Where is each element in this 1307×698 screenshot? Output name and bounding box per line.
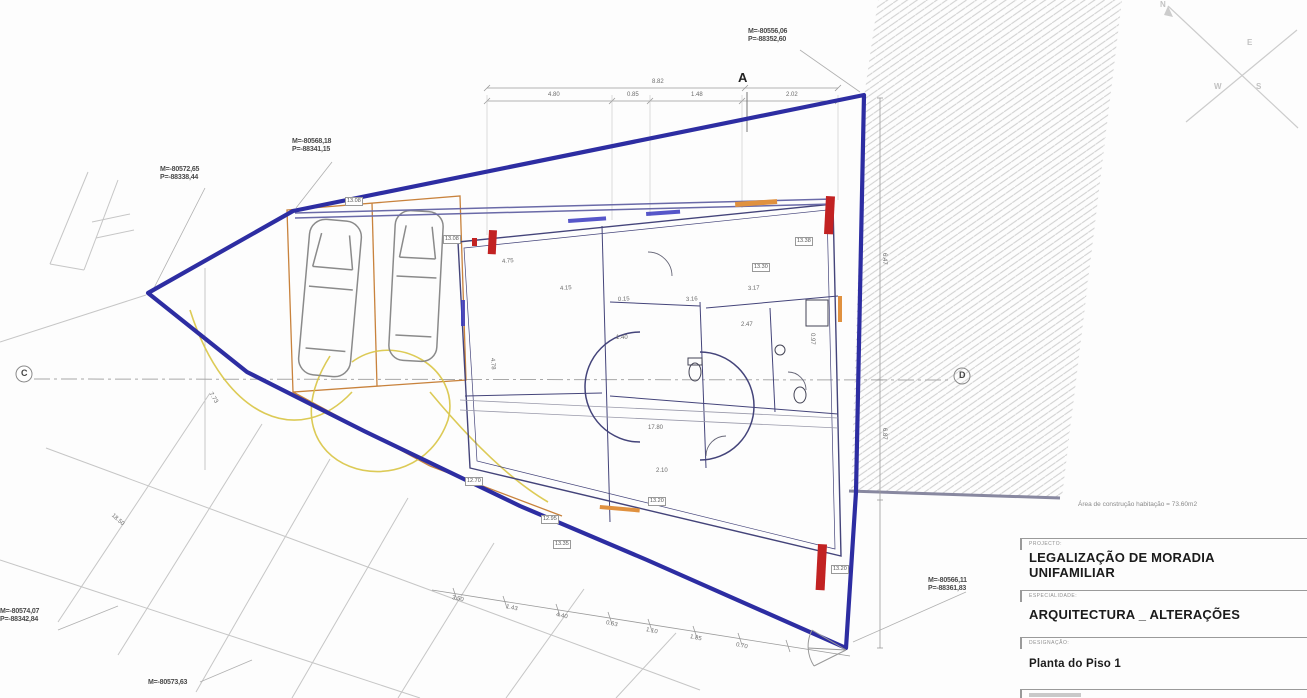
designation-title: Planta do Piso 1 xyxy=(1029,658,1121,670)
title-block-tick xyxy=(1020,638,1022,649)
site-plan-canvas: M=-80556,06P=-88352,60M=-80568,18P=-8834… xyxy=(0,0,1307,698)
section-marker-c: C xyxy=(21,368,28,378)
project-label: PROJECTO: xyxy=(1029,541,1062,547)
area-note: Área de construção habitação = 73.60m2 xyxy=(1078,501,1197,508)
title-block: PROJECTO: LEGALIZAÇÃO DE MORADIA UNIFAMI… xyxy=(1020,532,1307,698)
leader-lines xyxy=(58,50,966,682)
title-block-designation-section: DESIGNAÇÃO: Planta do Piso 1 xyxy=(1020,637,1307,690)
title-block-project-section: PROJECTO: LEGALIZAÇÃO DE MORADIA UNIFAMI… xyxy=(1020,538,1307,591)
terrain-lines xyxy=(0,172,700,698)
title-block-tick xyxy=(1020,591,1022,602)
site-boundary xyxy=(148,95,864,648)
compass-icon xyxy=(1164,6,1298,128)
compass-w-label: W xyxy=(1214,82,1222,91)
garage-outline xyxy=(287,196,562,516)
title-block-tick xyxy=(1020,539,1022,550)
section-marker-a: A xyxy=(738,70,747,85)
section-line-cd xyxy=(16,366,970,384)
project-title-line1: LEGALIZAÇÃO DE MORADIA xyxy=(1029,550,1215,565)
section-marker-d: D xyxy=(959,370,966,380)
compass-e-label: E xyxy=(1247,38,1252,47)
compass-n-label: N xyxy=(1160,0,1166,9)
illegible-label-bar xyxy=(1029,693,1081,697)
title-block-specialty-section: ESPECIALIDADE: ARQUITECTURA _ ALTERAÇÕES xyxy=(1020,590,1307,638)
specialty-title: ARQUITECTURA _ ALTERAÇÕES xyxy=(1029,607,1240,622)
title-block-tick xyxy=(1020,690,1022,698)
specialty-label: ESPECIALIDADE: xyxy=(1029,593,1077,599)
title-block-partial-section xyxy=(1020,689,1307,698)
red-section-markers xyxy=(472,196,835,590)
designation-label: DESIGNAÇÃO: xyxy=(1029,640,1069,646)
compass-s-label: S xyxy=(1256,82,1261,91)
hatched-area xyxy=(849,0,1122,498)
project-title-line2: UNIFAMILIAR xyxy=(1029,565,1115,580)
